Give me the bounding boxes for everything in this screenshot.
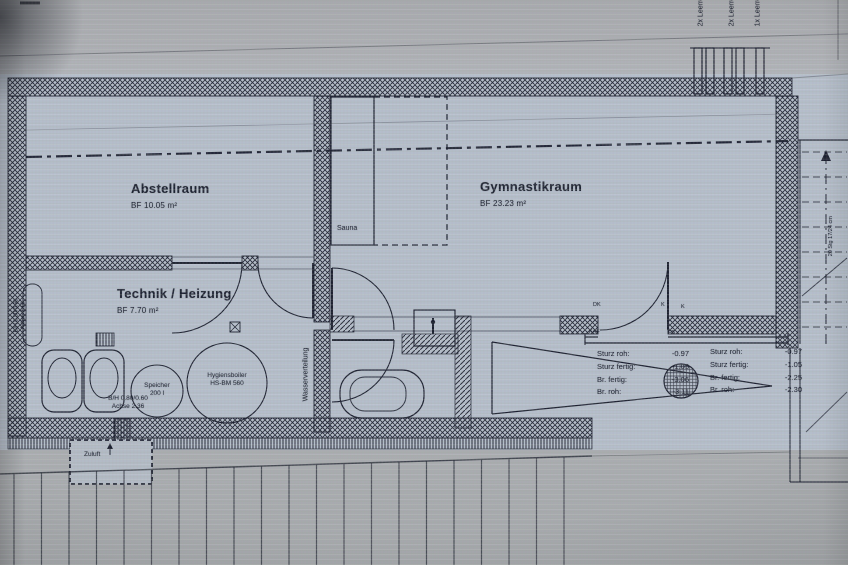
level-row: Br. roh:-2.30 xyxy=(710,384,802,397)
level-row: Br. roh:-3.11 xyxy=(597,386,689,399)
level-row: Sturz fertig:-1.05 xyxy=(710,359,802,372)
level-row: Sturz fertig:-1.05 xyxy=(597,361,689,374)
hatched-walls xyxy=(330,316,471,428)
window-mark-fb: FB xyxy=(668,330,675,337)
lintel-technik-line1: B/H 0.80/0.60 xyxy=(92,395,164,403)
window-mark-k1: K xyxy=(661,302,665,309)
level-row: Br. fertig:-2.25 xyxy=(710,372,802,385)
room-area-technik: BF 7.70 m² xyxy=(117,306,159,315)
leerrohr-label-1: 2x Leerrohr xyxy=(698,0,705,44)
stair-note: 20 Stg 17/24 cm xyxy=(828,206,835,266)
equipment-boiler: Hygiensboiler HS-BM 560 xyxy=(193,372,261,387)
wasserverteilung-label: Wasserverteilung xyxy=(303,335,310,415)
leerrohr-label-2: 2x Leerrohr xyxy=(729,0,736,44)
room-label-gymnastikraum: Gymnastikraum xyxy=(480,179,582,194)
lintel-note-left-wall: B/H 0.80/0.60 Achse 2.16 xyxy=(14,282,27,350)
floor-plan-photo: Abstellraum BF 10.05 m² Gymnastikraum BF… xyxy=(0,0,848,565)
room-label-abstellraum: Abstellraum xyxy=(131,181,209,196)
level-row: Br. fertig:-3.06 xyxy=(597,374,689,387)
exterior-stair xyxy=(790,140,848,482)
zuluft-label: Zuluft xyxy=(84,451,100,459)
leerrohr-label-3: 1x Leerrohr xyxy=(755,0,762,44)
sauna-outline xyxy=(331,97,447,245)
room-area-gymnastikraum: BF 23.23 m² xyxy=(480,199,526,208)
window-mark-kaf: KAF xyxy=(589,329,600,336)
window-mark-dk: DK xyxy=(593,302,601,309)
room-area-abstellraum: BF 10.05 m² xyxy=(131,201,177,210)
window-mark-k2: K xyxy=(681,304,685,311)
boiler-line2: HS-BM 560 xyxy=(193,380,261,388)
boiler-line1: Hygiensboiler xyxy=(193,372,261,380)
speicher-line1: Speicher xyxy=(135,382,179,390)
stair-treads xyxy=(802,152,847,327)
room-label-technik: Technik / Heizung xyxy=(117,286,232,301)
wc-fixtures xyxy=(340,310,455,418)
level-row: Sturz roh:-0.97 xyxy=(710,346,802,359)
lintel-note-technik: B/H 0.80/0.60 Achse 2.36 xyxy=(92,395,164,410)
lintel-technik-line2: Achse 2.36 xyxy=(92,403,164,411)
terrain-lines xyxy=(0,0,848,130)
level-row: Sturz roh:-0.97 xyxy=(597,348,689,361)
deck-planks xyxy=(14,457,564,565)
level-list-left: Sturz roh:-0.97 Sturz fertig:-1.05 Br. f… xyxy=(597,348,689,399)
lintel-wall-line2: Achse 2.16 xyxy=(20,282,27,350)
height-dash-line xyxy=(26,141,788,157)
level-list-right: Sturz roh:-0.97 Sturz fertig:-1.05 Br. f… xyxy=(710,346,802,397)
floor-plan-drawing xyxy=(0,0,848,565)
room-label-sauna: Sauna xyxy=(337,225,357,232)
window-band xyxy=(585,333,788,345)
